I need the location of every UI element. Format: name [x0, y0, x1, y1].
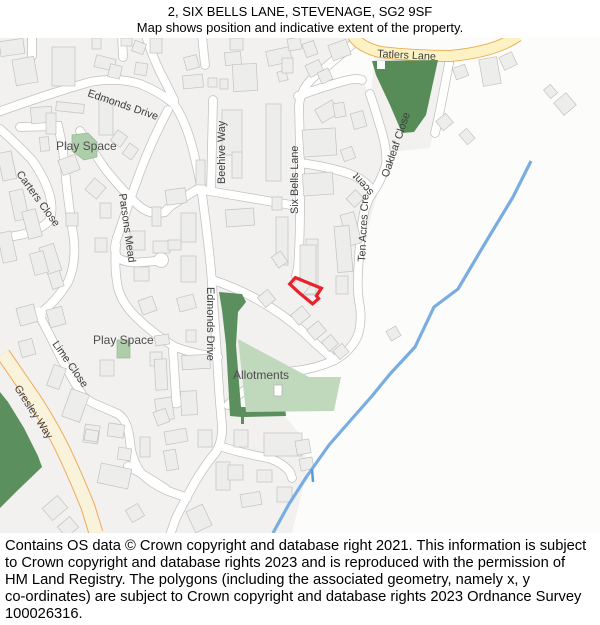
svg-text:Edmonds Drive: Edmonds Drive: [204, 287, 216, 361]
svg-text:Beehive Way: Beehive Way: [216, 120, 228, 184]
svg-text:Six Bells Lane: Six Bells Lane: [289, 146, 301, 214]
svg-text:Play Space: Play Space: [93, 333, 154, 347]
svg-text:Play Space: Play Space: [56, 139, 117, 153]
svg-text:Allotments: Allotments: [233, 368, 289, 382]
